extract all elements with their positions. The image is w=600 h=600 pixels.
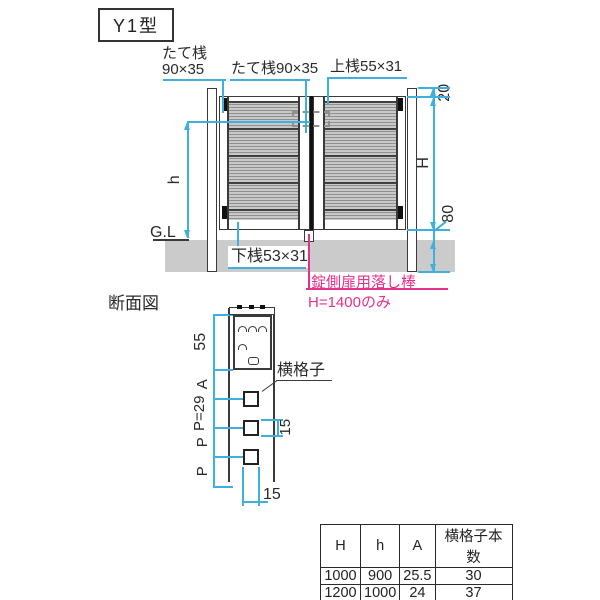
dim-label-P: P (195, 451, 212, 491)
left-leaf-panel (228, 96, 299, 230)
ground-level-tick (153, 239, 189, 241)
dim-label-80: 80 (440, 194, 458, 234)
leader-line (305, 80, 307, 133)
hinge-icon (398, 98, 403, 111)
cell: 900 (361, 568, 400, 585)
cell: 1200 (321, 585, 361, 600)
right-leaf-panel (324, 96, 397, 230)
section-title: 断面図 (108, 295, 159, 314)
bottom-rail-label: 下桟53×31 (231, 248, 308, 266)
top-rail-profile (233, 315, 272, 370)
leader-line (327, 78, 329, 104)
dimension-extension (187, 121, 310, 123)
center-stile-label: たて桟90×35 (231, 61, 318, 78)
dimension-tick (213, 369, 233, 371)
dim-label-h: h (166, 160, 184, 200)
lock-handle-outline (292, 111, 330, 127)
section-frame-line (273, 313, 275, 482)
note-line2: H=1400のみ (308, 291, 391, 312)
technical-drawing-page: Y1型 たて桟 90×35 (0, 0, 600, 600)
arrow-up-icon (430, 241, 436, 249)
dimension-tick (213, 427, 243, 429)
cap-notch (249, 305, 254, 309)
dim-label-H: H (415, 143, 433, 183)
col-header-h: h (361, 525, 400, 568)
note-underline (306, 288, 448, 290)
lattice-label: 横格子 (277, 362, 325, 380)
dim-label-55: 55 (192, 322, 210, 362)
model-title-box: Y1型 (98, 8, 174, 42)
leader-line (327, 77, 407, 79)
cell: 1000 (321, 568, 361, 585)
dimension-extension (418, 271, 450, 273)
leader-line (163, 79, 226, 81)
col-header-lattice-count: 横格子本数 (435, 525, 512, 568)
lattice-bar-section (243, 420, 259, 436)
cell: 1000 (361, 585, 400, 600)
dim-label-15-width: 15 (263, 486, 281, 504)
dimension-tick (213, 456, 243, 458)
arrow-up-icon (430, 88, 436, 96)
profile-serration (238, 319, 270, 355)
lattice-bar-section (243, 391, 259, 407)
left-leaf-slats (229, 101, 298, 220)
left-post (207, 88, 217, 272)
hinge-icon (222, 206, 227, 219)
table-row: 1000 900 25.5 30 (321, 568, 513, 585)
hinge-icon (398, 206, 403, 219)
leader-line (262, 381, 277, 393)
table-row: 1200 1000 24 37 (321, 585, 513, 600)
right-post (407, 88, 417, 272)
section-dim-line (213, 315, 215, 487)
spec-table: H h A 横格子本数 1000 900 25.5 30 1200 1000 2… (320, 524, 513, 600)
profile-screw-boss (248, 357, 259, 365)
cell: 37 (435, 585, 512, 600)
table-header-row: H h A 横格子本数 (321, 525, 513, 568)
dimension-line-h (187, 122, 189, 238)
note-leader-line (308, 234, 310, 289)
arrow-up-icon (184, 122, 190, 130)
col-header-A: A (400, 525, 435, 568)
leader-line (230, 79, 310, 81)
cell: 30 (435, 568, 512, 585)
cell: 25.5 (400, 568, 435, 585)
dimension-line-H (433, 97, 435, 230)
leader-line (237, 222, 239, 246)
dim-label-15-height: 15 (278, 412, 295, 442)
cell: 24 (400, 585, 435, 600)
stile-label-line2: 90×35 (162, 62, 204, 79)
dim-label-20: 20 (436, 73, 454, 113)
dimension-tick (213, 486, 233, 488)
model-title: Y1型 (113, 12, 159, 38)
leader-underline (228, 267, 306, 269)
leader-underline (276, 380, 332, 381)
lattice-bar-section (243, 449, 259, 465)
cap-notch (260, 305, 265, 309)
col-header-H: H (321, 525, 361, 568)
dimension-extension (407, 229, 450, 231)
right-leaf-slats (325, 101, 396, 220)
leader-line (222, 80, 224, 113)
dimension-extension (407, 96, 450, 98)
top-rail-label: 上桟55×31 (330, 59, 402, 76)
dimension-tick (213, 398, 243, 400)
cap-notch (237, 305, 242, 309)
arrow-down-icon (184, 230, 190, 238)
arrow-up-icon (430, 98, 436, 106)
